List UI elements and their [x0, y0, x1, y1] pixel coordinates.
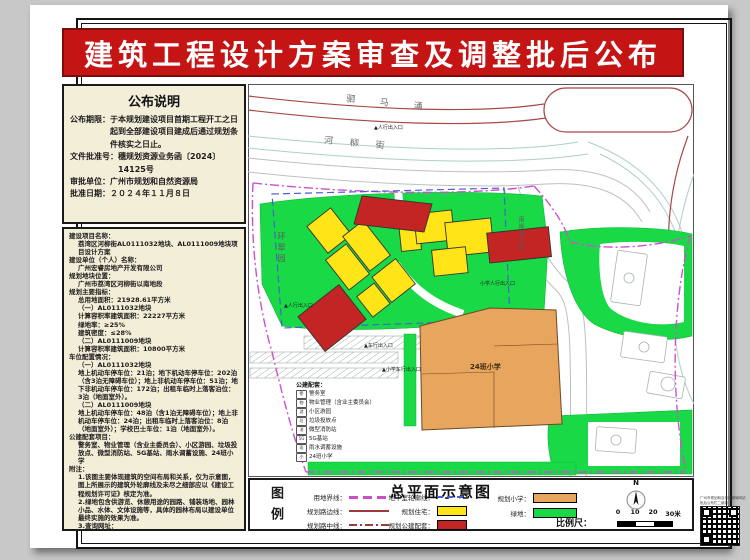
notice-line: 公布期限： 于本规划建设项目首期工程开工之日起到全部建设项目建成后通过规划条件核…: [70, 114, 238, 151]
detail-line: （一）AL0111032地块: [69, 361, 239, 369]
detail-line: 警务室、物业管理（含业主委员会）、小区游园、垃圾投放点、微型消防站、5G基站、雨…: [69, 441, 239, 465]
map-label: ▲人行出入口: [374, 124, 403, 131]
map-label: ▲人行出入口: [284, 302, 313, 309]
facility-item: 垃 垃圾投放点: [296, 417, 396, 426]
detail-line: （二）AL0111009地块: [69, 401, 239, 409]
facility-icon: 消: [296, 426, 307, 435]
map-label: 南岸涌大街: [516, 216, 525, 251]
detail-line: 地上机动车停车位：21泊；地下机动车停车位：202泊（含3泊无障碍车位）；地上非…: [69, 369, 239, 401]
detail-line: 建设项目名称：: [69, 232, 239, 240]
page-title: 建筑工程设计方案审查及调整批后公布: [84, 32, 662, 74]
map-label: 河 柳 街: [324, 133, 393, 152]
notice-line-label: 公布期限：: [70, 114, 110, 151]
qr-caption-line1: 广州市规划和自然资源局网站: [700, 496, 746, 501]
map-label: 小学人行出入口: [480, 280, 515, 287]
legend-item-label: 规划公建配套：: [370, 520, 434, 530]
notice-line: 文件批准号： 穗规划资源业务函〔2024〕14125号: [70, 151, 238, 176]
notice-title: 公布说明: [70, 91, 238, 110]
facility-item: 消 微型消防站: [296, 426, 396, 435]
legend-item-swatch: [437, 520, 467, 530]
map-label: 驷 马 涌: [346, 91, 435, 113]
facility-icon: 垃: [296, 417, 307, 426]
facility-label: 5G基站: [309, 435, 328, 444]
north-label: N: [624, 480, 648, 487]
detail-line: 车位配置情况：: [69, 353, 239, 361]
publication-notice-box: 公布说明 公布期限： 于本规划建设项目首期工程开工之日起到全部建设项目建成后通过…: [62, 84, 246, 224]
north-compass: N: [624, 480, 648, 515]
scale-tick: 30米: [665, 508, 681, 518]
detail-line: 计算容积率建筑面积：10800平方米: [69, 345, 239, 353]
notice-lines: 公布期限： 于本规划建设项目首期工程开工之日起到全部建设项目建成后通过规划条件核…: [70, 114, 238, 201]
qr-code-block: 广州市规划和自然资源局网站 批后公布栏二维码: [700, 496, 746, 546]
facility-icon: 雨: [296, 444, 307, 453]
facility-label: 微型消防站: [309, 426, 337, 435]
facility-label: 24班小学: [309, 453, 333, 462]
facility-item: 游 小区游园: [296, 408, 396, 417]
notice-line: 批准日期： ２０２４年１１月８日: [70, 188, 238, 200]
notice-line-label: 批准日期：: [70, 188, 110, 200]
facilities-title: 公建配套：: [296, 380, 396, 389]
project-details-box: 建设项目名称：荔湾区河柳街AL0111032地块、AL0111009地块项目设计…: [62, 227, 246, 531]
detail-line: 2.绿地包含供游览、休憩用途的园路、铺装场地、园林小品、水体、文体设施等，具体的…: [69, 498, 239, 522]
legend-band: 图例 总平面示意图 用地界线： 规划路边线： 规划路中线： 地下室轮廓线： 规划…: [248, 478, 694, 531]
detail-line: 建设单位（个人）名称：: [69, 256, 239, 264]
detail-line: 公建配套项目：: [69, 433, 239, 441]
legend-item: 规划小学：: [486, 493, 577, 503]
facility-icon: 5G: [296, 435, 307, 444]
facility-label: 小区游园: [309, 408, 331, 417]
detail-line: 荔湾区河柳街AL0111032地块、AL0111009地块项目设计方案: [69, 240, 239, 256]
qr-caption-line2: 批后公布栏二维码: [700, 501, 746, 506]
facility-item: 5G 5G基站: [296, 435, 396, 444]
map-label: 环翠园: [276, 232, 287, 265]
notice-line: 审批单位： 广州市规划和自然资源局: [70, 176, 238, 188]
detail-lines: 建设项目名称：荔湾区河柳街AL0111032地块、AL0111009地块项目设计…: [69, 232, 239, 531]
qr-code: [700, 506, 740, 546]
page-background: 建筑工程设计方案审查及调整批后公布 公布说明 公布期限： 于本规划建设项目首期工…: [0, 0, 750, 560]
legend-item-label: 规划路中线：: [288, 520, 346, 530]
compass-icon: [624, 487, 648, 511]
map-label: ▲车行出入口: [364, 342, 393, 349]
notice-line-text: 广州市规划和自然资源局: [110, 176, 238, 188]
facility-item: 警 警务室: [296, 390, 396, 399]
detail-line: 1.该图主要体现建筑的空间布局和关系，仅为示意图，图上所展示的建筑外轮廓线及未尽…: [69, 473, 239, 497]
facility-icon: 警: [296, 390, 307, 399]
detail-line: 建筑密度：≤28%: [69, 329, 239, 337]
detail-line: http://ghzyj.gz.gov.cn/ywpd/cxgh/ghwkgsg…: [69, 530, 239, 531]
legend-item-swatch: [437, 496, 465, 498]
title-banner: 建筑工程设计方案审查及调整批后公布: [62, 28, 684, 77]
scale-bar: [617, 521, 673, 527]
detail-line: 绿地率：≥25%: [69, 321, 239, 329]
scale-tick: 20: [648, 508, 657, 516]
facilities-list: 公建配套： 警 警务室 物 物业管理（含业主委员会） 游 小区游园 垃 垃圾投放…: [296, 380, 396, 462]
facilities-items: 警 警务室 物 物业管理（含业主委员会） 游 小区游园 垃 垃圾投放点 消 微型…: [296, 390, 396, 462]
detail-line: （二）AL0111009地块: [69, 337, 239, 345]
legend-item: 规划公建配套：: [370, 520, 467, 530]
notice-line-text: 穗规划资源业务函〔2024〕14125号: [118, 151, 238, 176]
facility-item: 小 24班小学: [296, 453, 396, 462]
scale-tick: 0: [616, 508, 621, 516]
legend-item-label: 规划小学：: [486, 493, 530, 503]
facility-item: 雨 雨水调蓄设施: [296, 444, 396, 453]
notice-line-text: ２０２４年１１月８日: [110, 188, 238, 200]
notice-line-text: 于本规划建设项目首期工程开工之日起到全部建设项目建成后通过规划条件核实之日止。: [110, 114, 238, 151]
facility-icon: 游: [296, 408, 307, 417]
detail-line: 地上机动车停车位：48泊（含1泊无障碍车位）；地上非机动车停车位：24泊；出租车…: [69, 409, 239, 433]
facility-label: 垃圾投放点: [309, 417, 337, 426]
map-label: 24班小学: [470, 362, 501, 372]
legend-item-swatch: [533, 493, 577, 503]
legend-item: 地下室轮廓线：: [370, 492, 465, 502]
detail-line: 计算容积率建筑面积：22227平方米: [69, 312, 239, 320]
facility-icon: 物: [296, 399, 307, 408]
facility-label: 雨水调蓄设施: [309, 444, 342, 453]
site-plan-map: 驷 马 涌河 柳 街环翠园南岸涌大街▲人行出入口▲人行出入口▲车行出入口小学人行…: [248, 84, 694, 477]
notice-line-label: 审批单位：: [70, 176, 110, 188]
facility-label: 物业管理（含业主委员会）: [309, 399, 375, 408]
notice-line-label: 文件批准号：: [70, 151, 118, 176]
legend-item-label: 用地界线：: [288, 492, 346, 502]
detail-line: 3.查询网址：: [69, 522, 239, 530]
facility-label: 警务室: [309, 390, 326, 399]
facility-item: 物 物业管理（含业主委员会）: [296, 399, 396, 408]
map-label: ▲小学车行出入口: [382, 366, 421, 373]
facility-icon: 小: [296, 453, 307, 462]
qr-finder-square: [702, 535, 711, 544]
legend-item-label: 地下室轮廓线：: [370, 492, 434, 502]
